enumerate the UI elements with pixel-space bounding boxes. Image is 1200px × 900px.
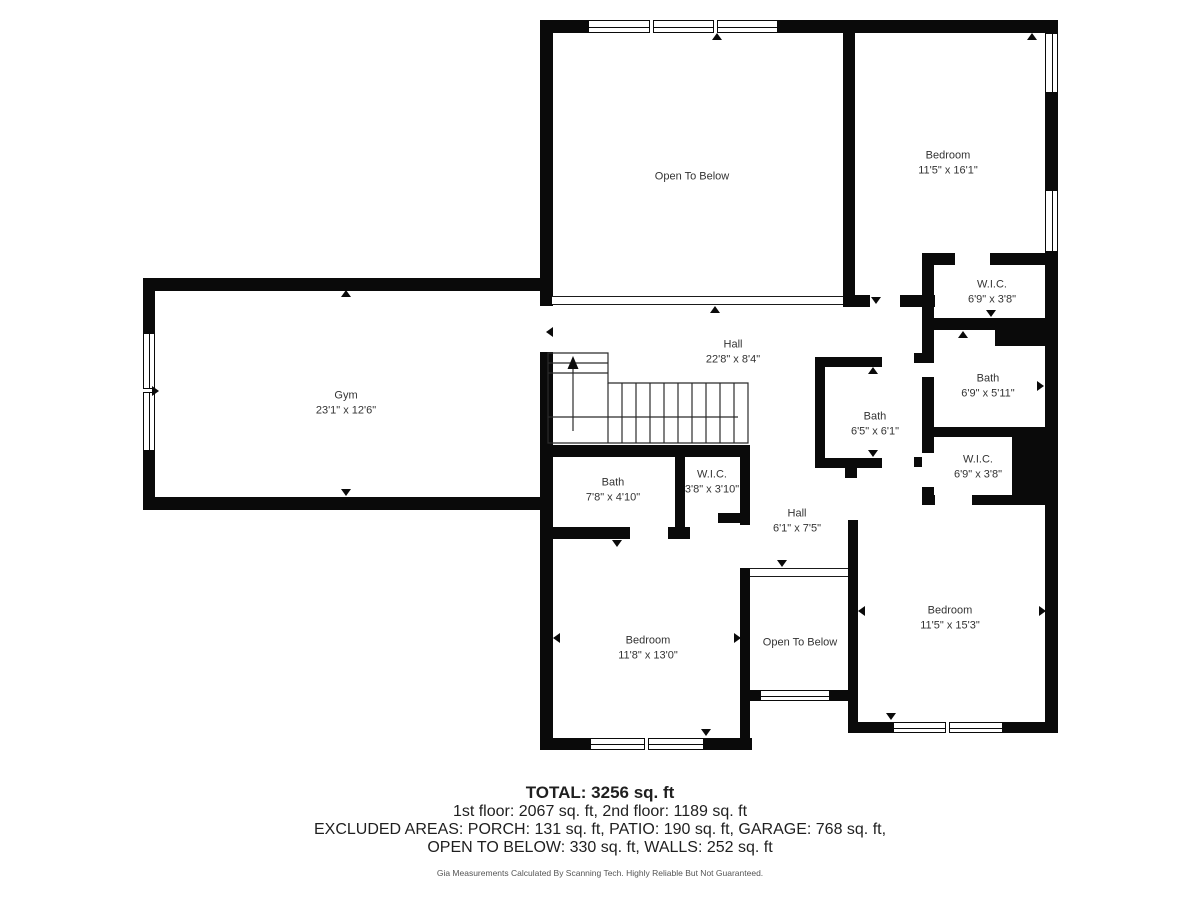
room-name: Hall: [773, 506, 821, 521]
room-dims: 6'1" x 7'5": [773, 521, 821, 536]
room-name: Bath: [586, 475, 640, 490]
room-dims: 22'8" x 8'4": [706, 352, 760, 367]
wall: [922, 253, 1058, 265]
window: [590, 738, 704, 750]
window-glass-line: [1052, 191, 1053, 251]
window-divider: [945, 722, 950, 733]
window-glass-line: [1052, 34, 1053, 92]
door-marker-icon: [777, 560, 787, 567]
door-marker-icon: [701, 729, 711, 736]
door-marker-icon: [734, 633, 741, 643]
window-glass-line: [589, 27, 777, 28]
room-name: Bedroom: [920, 603, 980, 618]
wall: [1045, 20, 1058, 733]
room-label-hall-upper: Hall 22'8" x 8'4": [706, 337, 760, 366]
door-marker-icon: [546, 327, 553, 337]
room-name: W.I.C.: [954, 452, 1002, 467]
door-marker-icon: [868, 367, 878, 374]
area-summary: TOTAL: 3256 sq. ft 1st floor: 2067 sq. f…: [0, 783, 1200, 878]
window-divider: [713, 20, 718, 33]
room-label-wic-small: W.I.C. 3'8" x 3'10": [685, 467, 739, 496]
window-divider: [644, 738, 649, 750]
room-name: Hall: [706, 337, 760, 352]
room-name: W.I.C.: [968, 277, 1016, 292]
window-divider: [649, 20, 654, 33]
wall: [845, 468, 857, 478]
door-marker-icon: [871, 297, 881, 304]
door-marker-icon: [341, 290, 351, 297]
open-below-walls-text: OPEN TO BELOW: 330 sq. ft, WALLS: 252 sq…: [0, 839, 1200, 857]
wall: [143, 497, 543, 510]
room-dims: 11'8" x 13'0": [618, 648, 678, 663]
wall: [995, 330, 1046, 346]
door-opening: [922, 363, 934, 377]
total-area-text: TOTAL: 3256 sq. ft: [0, 783, 1200, 803]
room-dims: 11'5" x 16'1": [918, 163, 978, 178]
room-name: Bedroom: [918, 148, 978, 163]
room-name: Gym: [316, 388, 376, 403]
room-label-open-to-below-top: Open To Below: [655, 170, 729, 185]
room-name: Open To Below: [655, 170, 729, 185]
room-label-bath-center: Bath 6'5" x 6'1": [851, 409, 899, 438]
room-label-open-to-below-bottom: Open To Below: [763, 636, 837, 651]
door-marker-icon: [152, 386, 159, 396]
room-dims: 11'5" x 15'3": [920, 618, 980, 633]
room-label-wic-top: W.I.C. 6'9" x 3'8": [968, 277, 1016, 306]
door-marker-icon: [1027, 33, 1037, 40]
room-label-bath-right: Bath 6'9" x 5'11": [961, 371, 1014, 400]
wall: [843, 20, 855, 307]
door-opening: [955, 253, 990, 265]
wall: [914, 457, 922, 467]
door-marker-icon: [1037, 381, 1044, 391]
door-marker-icon: [958, 331, 968, 338]
wall: [922, 318, 1058, 330]
wall: [914, 353, 922, 363]
wall: [922, 427, 1058, 437]
room-dims: 6'5" x 6'1": [851, 424, 899, 439]
wall: [848, 520, 858, 733]
room-dims: 23'1" x 12'6": [316, 403, 376, 418]
room-label-wic-middle: W.I.C. 6'9" x 3'8": [954, 452, 1002, 481]
wall: [1012, 437, 1046, 495]
room-label-bedroom-bottom-right: Bedroom 11'5" x 15'3": [920, 603, 980, 632]
room-name: Bath: [961, 371, 1014, 386]
door-opening: [630, 527, 668, 539]
room-dims: 3'8" x 3'10": [685, 482, 739, 497]
excluded-areas-text: EXCLUDED AREAS: PORCH: 131 sq. ft, PATIO…: [0, 821, 1200, 839]
door-marker-icon: [712, 33, 722, 40]
door-marker-icon: [858, 606, 865, 616]
room-label-bath-left: Bath 7'8" x 4'10": [586, 475, 640, 504]
window: [760, 690, 830, 701]
door-opening: [922, 453, 934, 487]
window: [1045, 33, 1058, 93]
door-marker-icon: [612, 540, 622, 547]
wall: [718, 513, 750, 523]
door-marker-icon: [986, 310, 996, 317]
wall: [815, 357, 825, 468]
railing: [552, 296, 843, 305]
railing: [750, 568, 848, 577]
door-marker-icon: [710, 306, 720, 313]
room-dims: 6'9" x 3'8": [954, 467, 1002, 482]
window: [1045, 190, 1058, 252]
wall: [675, 457, 685, 538]
floor-areas-text: 1st floor: 2067 sq. ft, 2nd floor: 1189 …: [0, 803, 1200, 821]
window: [893, 722, 1003, 733]
room-dims: 7'8" x 4'10": [586, 490, 640, 505]
wall: [815, 357, 882, 367]
floor-plan: Open To Below Bedroom 11'5" x 16'1" W.I.…: [0, 0, 1200, 900]
room-name: W.I.C.: [685, 467, 739, 482]
room-label-bedroom-top-right: Bedroom 11'5" x 16'1": [918, 148, 978, 177]
door-marker-icon: [868, 450, 878, 457]
door-marker-icon: [553, 633, 560, 643]
door-marker-icon: [886, 713, 896, 720]
room-name: Bath: [851, 409, 899, 424]
door-opening: [935, 495, 972, 505]
room-label-hall-lower: Hall 6'1" x 7'5": [773, 506, 821, 535]
room-dims: 6'9" x 5'11": [961, 386, 1014, 401]
disclaimer-text: Gia Measurements Calculated By Scanning …: [0, 868, 1200, 878]
door-marker-icon: [341, 489, 351, 496]
room-label-bedroom-bottom-left: Bedroom 11'8" x 13'0": [618, 633, 678, 662]
door-marker-icon: [1039, 606, 1046, 616]
wall: [815, 458, 882, 468]
room-dims: 6'9" x 3'8": [968, 292, 1016, 307]
window: [588, 20, 778, 33]
room-name: Open To Below: [763, 636, 837, 651]
wall: [740, 568, 750, 750]
room-label-gym: Gym 23'1" x 12'6": [316, 388, 376, 417]
window-glass-line: [761, 696, 829, 697]
room-name: Bedroom: [618, 633, 678, 648]
